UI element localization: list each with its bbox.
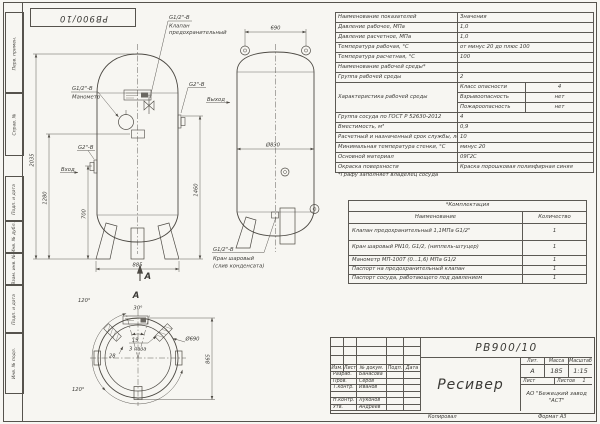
title-block: Изм. Лист № докум. Подп. Дата Разраб. Ба… xyxy=(330,337,595,414)
margin-label: Перв. примен. xyxy=(12,36,17,70)
spec-row: Основной материал09Г2С xyxy=(336,153,594,163)
tb-doc-name: Ресивер xyxy=(421,358,521,411)
spec-row: Температура расчетная, °С100 xyxy=(336,53,594,63)
kit-item: Паспорт сосуда, работающего под давление… xyxy=(349,275,523,284)
spec-value: минус 20 xyxy=(458,143,594,153)
kit-qty: 1 xyxy=(523,275,587,284)
spec-label: Температура расчетная, °С xyxy=(336,53,458,63)
tb-sheets-label: Листов xyxy=(557,379,575,384)
kit-row: Паспорт сосуда, работающего под давление… xyxy=(349,275,587,284)
spec-row: Группа рабочей среды2 xyxy=(336,73,594,83)
inlet-name-label: Вход xyxy=(61,167,75,173)
kit-row: Кран шаровый PN10, G1/2, (ниппель-штуцер… xyxy=(349,241,587,256)
spec-value: 1,0 xyxy=(458,33,594,43)
outlet-thread-label: G2"-В xyxy=(189,82,205,88)
tb-mass-header: Масса xyxy=(545,358,569,365)
spec-char-value: нет xyxy=(526,93,594,103)
kit-qty: 1 xyxy=(523,224,587,241)
dim-700: 700 xyxy=(82,208,88,219)
spec-value: 100 xyxy=(458,53,594,63)
spec-value: от минус 20 до плюс 100 xyxy=(458,43,594,53)
kit-item: Клапан предохранительный 1,1МПа G1/2" xyxy=(349,224,523,241)
spec-value: 4 xyxy=(458,113,594,123)
kit-qty: 1 xyxy=(523,241,587,256)
dim-28: 28 xyxy=(109,354,116,360)
spec-row: Давление расчетное, МПа1,0 xyxy=(336,33,594,43)
dim-plan-height: 865 xyxy=(206,353,212,364)
tb-sheets-value: 1 xyxy=(582,379,585,384)
tb-lit-value: А xyxy=(521,365,545,378)
spec-row: Температура рабочая, °Сот минус 20 до пл… xyxy=(336,43,594,53)
drain-thread-label: G1/2"-В xyxy=(213,247,234,253)
manometer-port xyxy=(119,115,134,130)
margin-label: Подп. и дата xyxy=(12,294,17,325)
spec-label: Минимальная температура стенки, °С xyxy=(336,143,458,153)
view-letter: А xyxy=(132,291,140,301)
spec-label: Давление рабочее, МПа xyxy=(336,23,458,33)
spec-label: Давление расчетное, МПа xyxy=(336,33,458,43)
margin-label: Инв. № подл. xyxy=(12,347,17,378)
slot xyxy=(155,324,173,342)
valve-name-label: Клапан xyxy=(169,24,190,30)
spec-row: Группа сосуда по ГОСТ Р 52630-20124 xyxy=(336,113,594,123)
spec-value: 10 xyxy=(458,133,594,143)
spec-value: 1,0 xyxy=(458,23,594,33)
angle-120-top: 120° xyxy=(78,298,91,304)
angle-120-bottom: 120° xyxy=(72,387,85,393)
format-label: Формат А3 xyxy=(538,414,566,420)
kit-table: *Комплектация Наименование Количество Кл… xyxy=(348,200,587,284)
outlet-nozzle xyxy=(178,115,185,128)
dim-plan-diameter: Ø690 xyxy=(185,336,201,343)
dim-1280: 1280 xyxy=(43,191,49,205)
vessel-views: G1/2"-В Клапан предохранительный G1/2"-В… xyxy=(22,2,332,422)
tb-lit-header: Лит. xyxy=(521,358,545,365)
tb-designation: РВ900/10 xyxy=(421,338,592,358)
spec-label: Расчетный и назначенный срок службы, лет xyxy=(336,133,458,143)
tb-col-podp: Подп. xyxy=(387,365,404,372)
spec-value: 2 xyxy=(458,73,594,83)
slot xyxy=(104,324,122,342)
spec-label: Вместимость, м³ xyxy=(336,123,458,133)
kit-item: Манометр МП-100Т (0...1,6) МПа G1/2 xyxy=(349,256,523,266)
kit-col1-header: Наименование xyxy=(349,212,523,224)
spec-label: Температура рабочая, °С xyxy=(336,43,458,53)
spec-value: 0,9 xyxy=(458,123,594,133)
spec-row: Вместимость, м³0,9 xyxy=(336,123,594,133)
spec-row: Окраска поверхностиКраска порошковая пол… xyxy=(336,163,594,173)
kit-item: Кран шаровый PN10, G1/2, (ниппель-штуцер… xyxy=(349,241,523,256)
front-fitting xyxy=(132,130,145,138)
lifting-lug xyxy=(302,46,311,55)
copied-label: Копировал xyxy=(428,414,457,420)
spec-value: 09Г2С xyxy=(458,153,594,163)
kit-qty: 1 xyxy=(523,256,587,266)
spec-char-name: Класс опасности xyxy=(458,83,526,93)
margin-label: Справ. № xyxy=(12,113,17,135)
inlet-nozzle xyxy=(90,160,97,173)
spec-label: Группа рабочей среды xyxy=(336,73,458,83)
dim-diameter-side: Ø830 xyxy=(265,142,281,149)
manometer-thread-label: G1/2"-В xyxy=(72,86,93,92)
kit-row: Клапан предохранительный 1,1МПа G1/2"1 xyxy=(349,224,587,241)
spec-table: Наименование показателей Значения Давлен… xyxy=(335,12,594,173)
margin-label: Взам. инв. № xyxy=(12,254,17,285)
spec-char-label: Характеристика рабочей среды xyxy=(336,83,458,113)
spec-label: Основной материал xyxy=(336,153,458,163)
tb-mass-value: 185 xyxy=(545,365,569,378)
spec-char-name: Взрывоопасность xyxy=(458,93,526,103)
dim-base-width: 885 xyxy=(133,263,144,269)
spec-char-name: Пожароопасность xyxy=(458,103,526,113)
drain-name-label2: (слив конденсата) xyxy=(213,264,264,270)
tb-col-izm: Изм. xyxy=(331,365,344,372)
tb-sheets: Листов 1 xyxy=(555,378,592,385)
tb-company: АО "Бежецкий завод "АСТ" xyxy=(521,385,592,411)
margin-label: Инв. № дубл. xyxy=(12,222,17,253)
tb-sheet-label: Лист xyxy=(521,378,555,385)
valve-name-label2: предохранительный xyxy=(169,30,227,36)
kit-item: Паспорт на предохранительный клапан xyxy=(349,266,523,275)
side-dimensions xyxy=(212,29,314,253)
spec-footnote: *Графу заполняет владелец сосуда xyxy=(338,172,438,178)
dim-slot-width: 19 xyxy=(132,338,139,344)
margin-label: Подп. и дата xyxy=(12,184,17,215)
spec-value xyxy=(458,63,594,73)
inlet-thread-label: G2"-В xyxy=(78,145,94,151)
spec-label: Группа сосуда по ГОСТ Р 52630-2012 xyxy=(336,113,458,123)
drawing-sheet: Перв. примен. Справ. № Подп. и дата Инв.… xyxy=(0,0,600,424)
lifting-lug xyxy=(241,46,250,55)
spec-label: Наименование рабочей среды* xyxy=(336,63,458,73)
spec-char-row: Характеристика рабочей среды Класс опасн… xyxy=(336,83,594,93)
outlet-name-label: Выход xyxy=(207,97,225,103)
kit-row: Паспорт на предохранительный клапан1 xyxy=(349,266,587,275)
safety-valve-glyph xyxy=(144,95,154,114)
spec-label: Окраска поверхности xyxy=(336,163,458,173)
tb-person: Андреев xyxy=(357,405,387,412)
manometer-name-label: Манометр xyxy=(72,95,101,101)
angle-30: 30° xyxy=(133,306,143,312)
tb-scale-value: 1:15 xyxy=(569,365,592,378)
spec-row: Давление рабочее, МПа1,0 xyxy=(336,23,594,33)
spec-col2-header: Значения xyxy=(458,13,594,23)
drain-fitting xyxy=(272,212,279,218)
dim-1460: 1460 xyxy=(194,183,200,197)
spec-row: Наименование рабочей среды* xyxy=(336,63,594,73)
tb-company-line2: "АСТ" xyxy=(548,398,564,405)
tb-col-docnum: № докум. xyxy=(357,365,387,372)
dim-total-height: 2035 xyxy=(30,153,36,167)
dim-top-width: 690 xyxy=(271,26,282,32)
spec-row: Минимальная температура стенки, °Сминус … xyxy=(336,143,594,153)
side-port xyxy=(281,168,289,176)
valve-thread-label: G1/2"-В xyxy=(169,15,190,21)
spec-header-row: Наименование показателей Значения xyxy=(336,13,594,23)
drain-name-label: Кран шаровый xyxy=(213,256,255,262)
kit-title: *Комплектация xyxy=(349,201,587,212)
tb-col-data: Дата xyxy=(404,365,421,372)
tb-role: Утв. xyxy=(331,405,357,412)
plan-view xyxy=(90,310,186,406)
kit-col2-header: Количество xyxy=(523,212,587,224)
spec-char-value: нет xyxy=(526,103,594,113)
front-view xyxy=(90,44,185,259)
spec-char-value: 4 xyxy=(526,83,594,93)
tb-company-line1: АО "Бежецкий завод xyxy=(526,391,587,398)
tb-scale-header: Масштаб xyxy=(569,358,592,365)
kit-qty: 1 xyxy=(523,266,587,275)
spec-col1-header: Наименование показателей xyxy=(336,13,458,23)
kit-row: Манометр МП-100Т (0...1,6) МПа G1/21 xyxy=(349,256,587,266)
tb-col-list: Лист xyxy=(344,365,357,372)
spec-row: Расчетный и назначенный срок службы, лет… xyxy=(336,133,594,143)
section-letter: А xyxy=(144,272,152,282)
slots-note: 3 паза xyxy=(129,347,146,353)
spec-value: Краска порошковая полиэфирная синяя xyxy=(458,163,594,173)
